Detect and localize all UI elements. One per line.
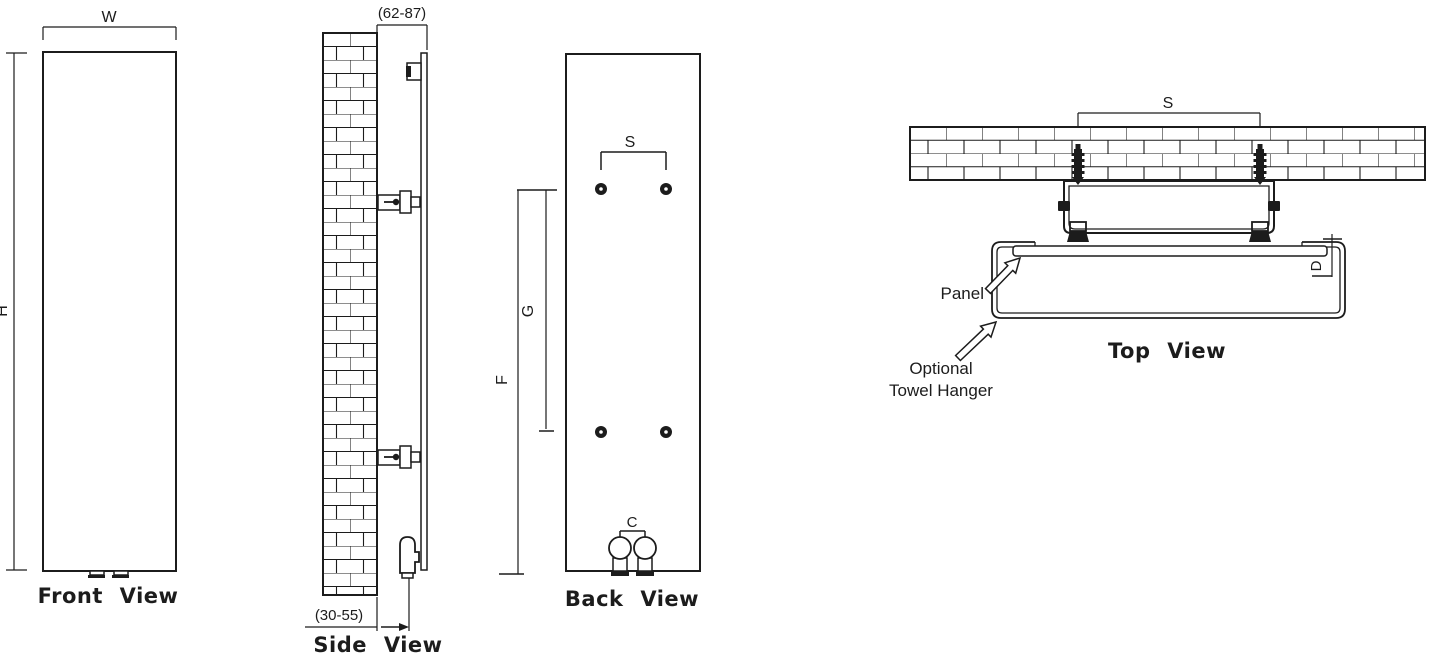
hole-to-bottom-dim-label: F xyxy=(494,375,511,385)
technical-drawing-page: W H Front View (62-87) xyxy=(0,0,1445,667)
side-view: (62-87) xyxy=(305,5,443,657)
panel-label: Panel xyxy=(941,284,984,303)
wall-to-panel-dimension: (62-87) xyxy=(377,5,427,50)
depth-dim-label: D xyxy=(1308,260,1325,271)
wall-to-pipe-dimension: (30-55) xyxy=(305,597,409,631)
side-view-title: Side View xyxy=(313,633,442,657)
front-view: W H Front View xyxy=(0,9,178,608)
front-view-title: Front View xyxy=(38,584,179,608)
bracket-spacing-dim-label: S xyxy=(625,134,636,151)
top-view-title: Top View xyxy=(1108,339,1226,363)
rail-fitting-left xyxy=(1058,201,1070,211)
optional-label: Optional xyxy=(909,359,972,378)
wall-to-panel-dim-label: (62-87) xyxy=(378,5,426,22)
anchor-spacing-dim-label: S xyxy=(1163,95,1174,112)
height-dim-label: H xyxy=(0,305,11,317)
rail-clip-left xyxy=(1067,222,1089,242)
radiator-panel-side xyxy=(421,53,427,570)
back-view: S G F C xyxy=(494,54,700,611)
pipe-elbow xyxy=(400,537,419,631)
height-dimension: H xyxy=(0,53,27,570)
hole-spacing-dimension: G xyxy=(517,190,557,431)
radiator-panel-front xyxy=(43,52,176,571)
width-dim-label: W xyxy=(101,9,117,26)
back-view-title: Back View xyxy=(565,587,699,611)
radiator-panel-back xyxy=(566,54,700,571)
towel-hanger-arrow-icon xyxy=(956,322,996,361)
connection-spacing-dim-label: C xyxy=(627,514,638,531)
panel-arrow-icon xyxy=(986,258,1021,293)
top-hook-bracket xyxy=(406,63,421,80)
radiator-panel-top xyxy=(1013,246,1327,256)
width-dimension: W xyxy=(43,9,176,40)
wall-section-top xyxy=(910,127,1425,180)
rail-fitting-right xyxy=(1268,201,1280,211)
rail-clip-right xyxy=(1249,222,1271,242)
wall-to-pipe-dim-label: (30-55) xyxy=(315,607,363,624)
lower-wall-bracket xyxy=(378,446,420,468)
hole-to-bottom-dimension: F xyxy=(494,190,524,574)
top-view: S xyxy=(889,95,1425,400)
wall-section-side xyxy=(323,33,377,595)
towel-hanger-label: Towel Hanger xyxy=(889,381,993,400)
hole-spacing-dim-label: G xyxy=(520,305,537,317)
mounting-rail-frame xyxy=(1058,181,1280,233)
upper-wall-bracket xyxy=(378,191,420,213)
radiator-installation-drawing: W H Front View (62-87) xyxy=(0,0,1445,667)
dim-arrow-icon xyxy=(399,623,409,631)
